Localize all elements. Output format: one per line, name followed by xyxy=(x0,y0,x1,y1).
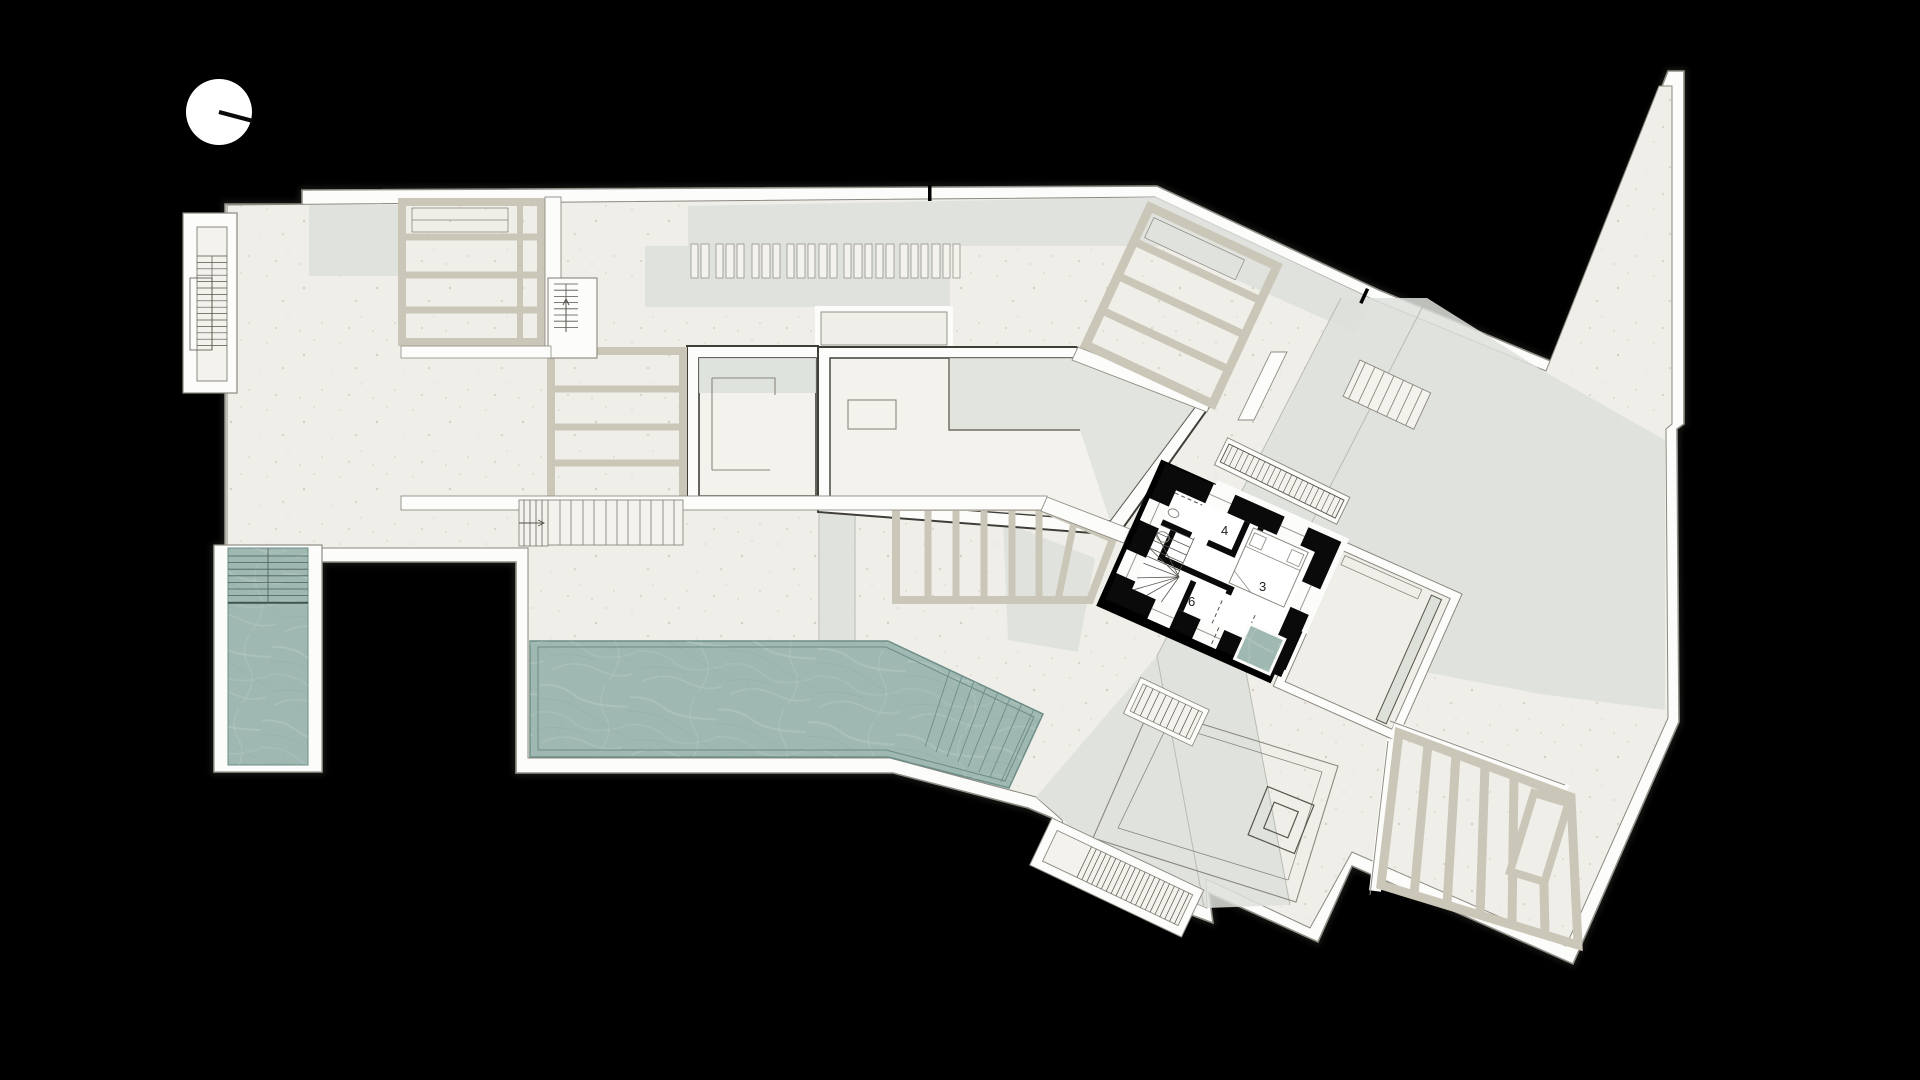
svg-text:4: 4 xyxy=(1221,523,1228,538)
svg-text:6: 6 xyxy=(1188,594,1195,609)
svg-text:3: 3 xyxy=(1259,579,1266,594)
